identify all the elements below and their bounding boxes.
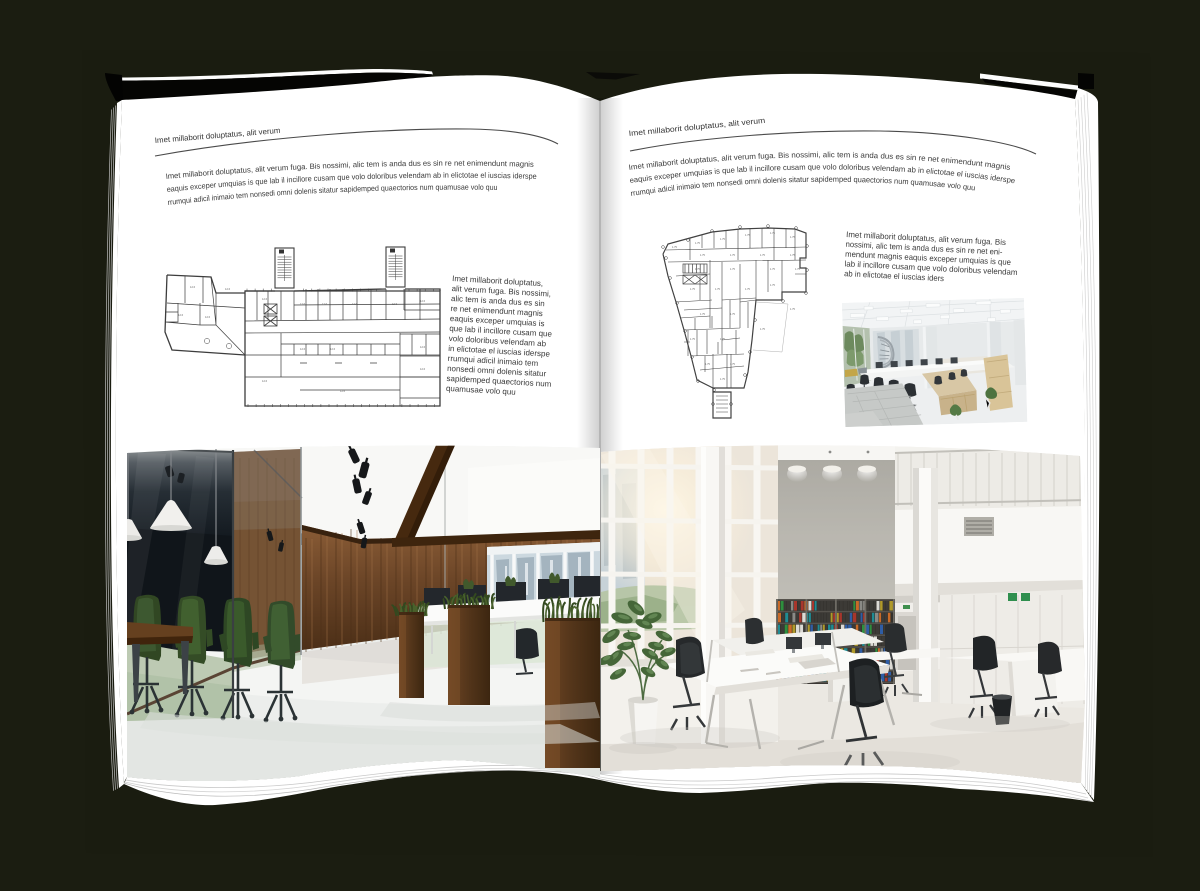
svg-text:1.75: 1.75 — [760, 254, 765, 257]
svg-text:1.75: 1.75 — [790, 236, 795, 239]
svg-text:1.75: 1.75 — [745, 234, 750, 237]
svg-text:1.75: 1.75 — [770, 268, 775, 271]
svg-text:1.75: 1.75 — [700, 313, 705, 316]
svg-text:1.75: 1.75 — [720, 338, 725, 341]
svg-text:12.6: 12.6 — [392, 302, 398, 306]
svg-text:1.75: 1.75 — [730, 363, 735, 366]
svg-text:1.75: 1.75 — [745, 288, 750, 291]
svg-text:12.6: 12.6 — [420, 345, 426, 349]
svg-text:12.6: 12.6 — [178, 313, 184, 317]
svg-text:1.75: 1.75 — [795, 268, 800, 271]
svg-text:1.75: 1.75 — [695, 242, 700, 245]
svg-text:12.6: 12.6 — [340, 389, 346, 393]
svg-text:12.6: 12.6 — [205, 315, 211, 319]
svg-text:12.6: 12.6 — [300, 347, 306, 351]
svg-text:1.75: 1.75 — [705, 363, 710, 366]
svg-text:12.6: 12.6 — [262, 297, 268, 301]
svg-text:1.75: 1.75 — [770, 284, 775, 287]
svg-text:12.6: 12.6 — [262, 379, 268, 383]
svg-text:1.75: 1.75 — [770, 232, 775, 235]
svg-text:1.75: 1.75 — [730, 254, 735, 257]
svg-text:12.6: 12.6 — [225, 287, 231, 291]
svg-text:12.6: 12.6 — [300, 302, 306, 306]
svg-text:12.6: 12.6 — [190, 285, 196, 289]
svg-text:1.75: 1.75 — [700, 254, 705, 257]
svg-text:1.75: 1.75 — [730, 268, 735, 271]
svg-text:1.75: 1.75 — [672, 246, 677, 249]
svg-text:12.6: 12.6 — [322, 302, 328, 306]
svg-text:12.6: 12.6 — [352, 302, 358, 306]
svg-text:1.75: 1.75 — [690, 288, 695, 291]
svg-text:1.75: 1.75 — [720, 238, 725, 241]
svg-text:1.75: 1.75 — [790, 308, 795, 311]
svg-text:1.75: 1.75 — [690, 338, 695, 341]
svg-text:1.75: 1.75 — [720, 378, 725, 381]
svg-text:1.75: 1.75 — [730, 313, 735, 316]
svg-text:1.75: 1.75 — [715, 288, 720, 291]
svg-text:1.75: 1.75 — [790, 254, 795, 257]
svg-text:1.75: 1.75 — [760, 328, 765, 331]
svg-text:1.75: 1.75 — [695, 268, 700, 271]
svg-text:12.6: 12.6 — [420, 367, 426, 371]
svg-text:12.6: 12.6 — [420, 299, 426, 303]
svg-text:12.6: 12.6 — [330, 347, 336, 351]
